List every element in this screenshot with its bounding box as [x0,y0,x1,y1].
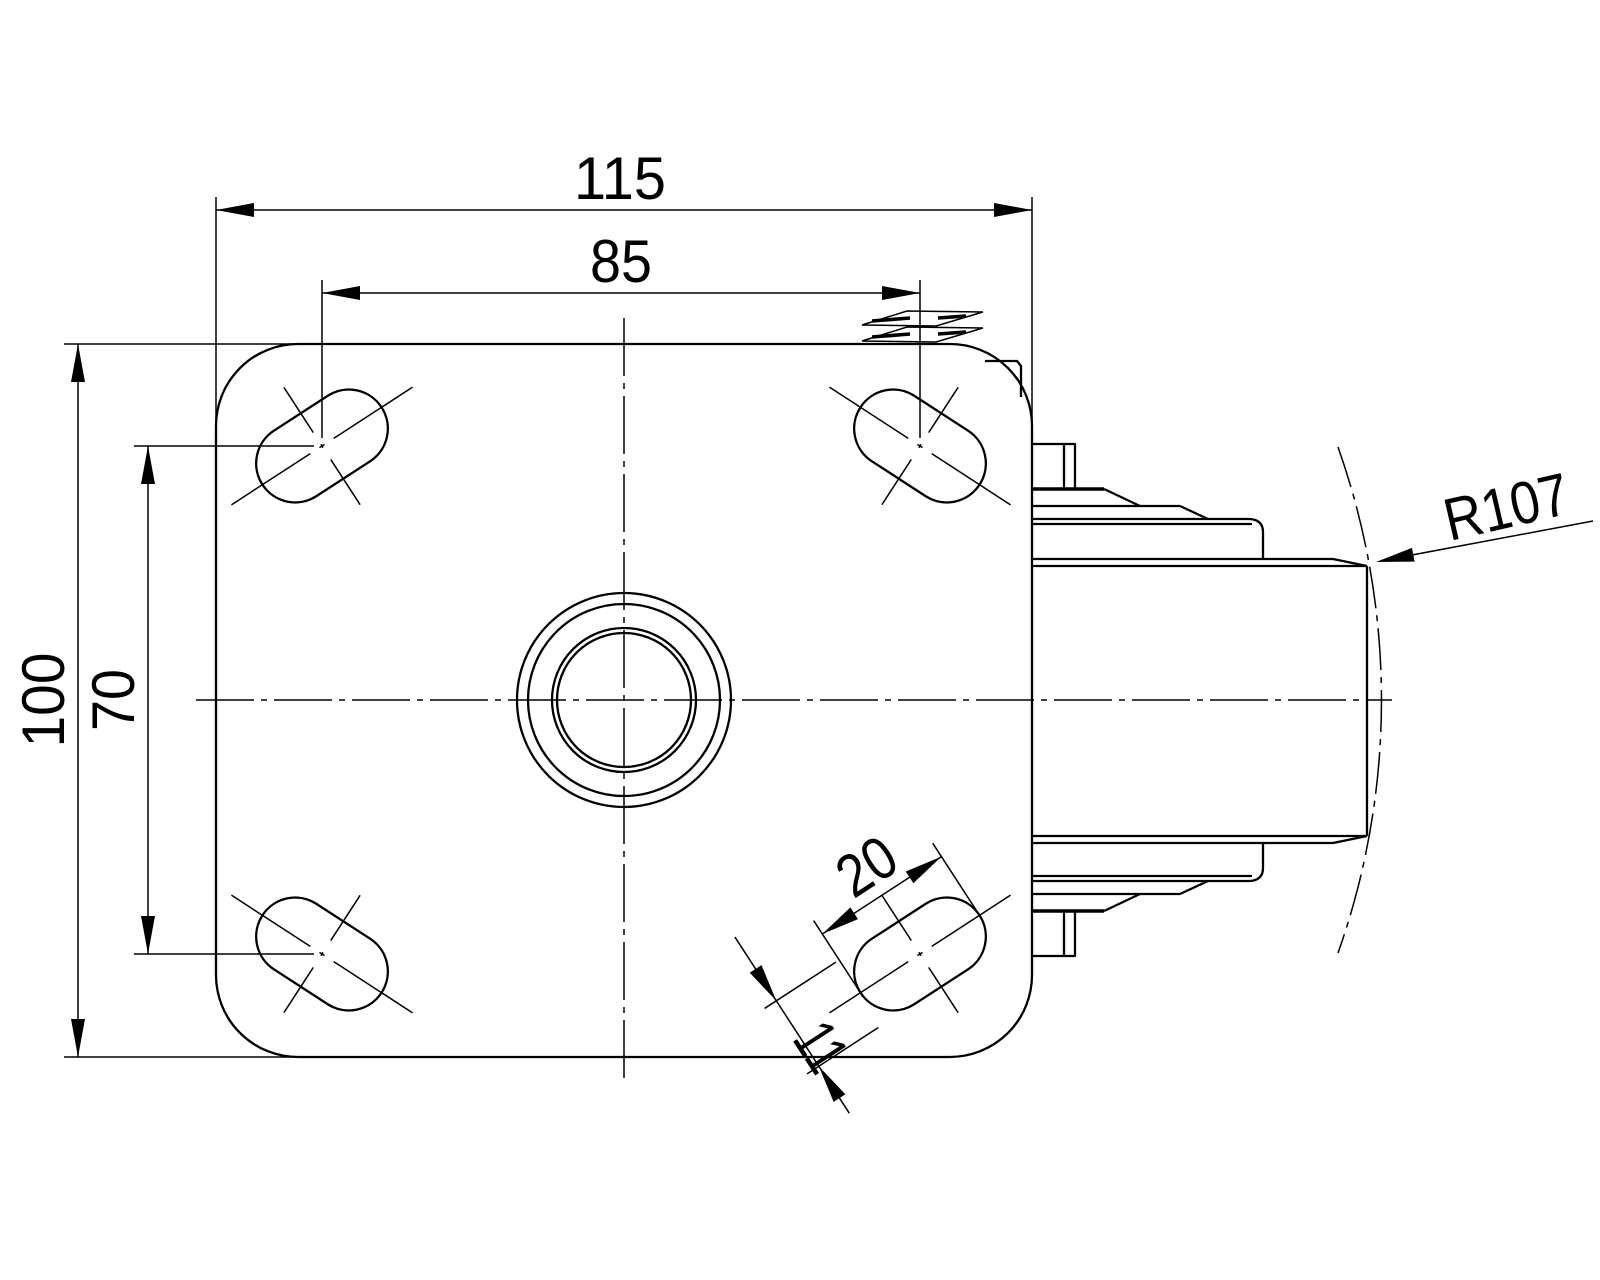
dim-extension-line [322,280,920,438]
dim-slot-width-label: 11 [780,1009,861,1084]
dim-arrowhead [906,851,945,883]
dim-arrowhead [71,344,85,382]
fork-shoulder-top [1032,506,1208,519]
dim-hole-spacing-horizontal: 85 [322,228,920,438]
dim-arrowhead [819,907,858,939]
mounting-slot-bottom-right: 20 11 [706,781,1062,1125]
thread-symbol [862,311,1021,397]
radius-leader-arrowhead [1375,548,1415,569]
dim-arrowhead [322,286,360,300]
slot-perpendicular-centerline [882,895,958,1012]
dim-arrowhead [141,916,155,954]
dim-arrowhead [216,203,254,217]
fork-shoulder-bottom [1032,881,1208,894]
thread-zigzag-upper [862,311,983,326]
dim-swivel-radius-label: R107 [1437,460,1575,554]
fork-top-step-chamfer [1104,489,1140,506]
fork-bottom-lug [1032,911,1075,956]
dim-plate-width-label: 115 [574,145,666,212]
fork-top-lug [1032,444,1075,489]
dim-hole-spacing-horizontal-label: 85 [590,228,652,295]
fork-bottom-step-chamfer [1104,894,1140,911]
dim-slot-length-label: 20 [824,823,909,911]
dim-arrowhead [71,1019,85,1057]
caster-technical-drawing: 20 11 [0,0,1600,1280]
thread-zigzag-lower [862,327,983,342]
dim-arrowhead [141,446,155,484]
dim-arrowhead [882,286,920,300]
dim-plate-height-label: 100 [10,653,77,748]
drawing-canvas: 20 11 [0,0,1600,1280]
dim-arrowhead [994,203,1032,217]
brake-lever-step [985,361,1021,397]
dim-arrowhead [750,965,782,1004]
dim-hole-spacing-vertical-label: 70 [80,669,147,731]
